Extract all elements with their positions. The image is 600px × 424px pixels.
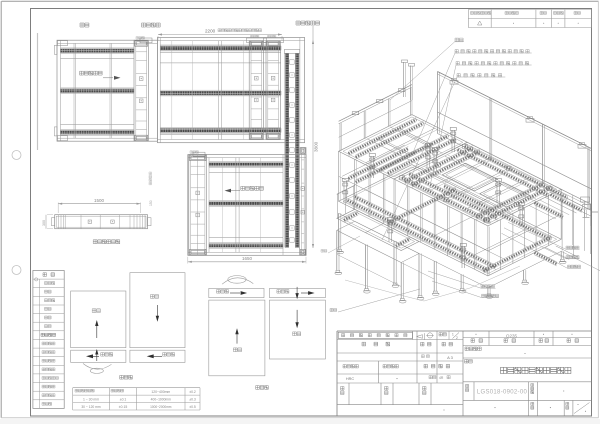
svg-text:2: 2 xyxy=(456,336,458,340)
svg-text:1: 1 xyxy=(452,332,454,336)
svg-text:HRC: HRC xyxy=(346,377,354,381)
svg-text:1000~2000mm: 1000~2000mm xyxy=(150,405,172,409)
svg-text:1 ~ 30 mm: 1 ~ 30 mm xyxy=(83,397,99,401)
svg-text:A 3: A 3 xyxy=(447,355,454,360)
svg-text:±0.15: ±0.15 xyxy=(119,405,128,409)
svg-text:±0.3: ±0.3 xyxy=(189,397,196,401)
svg-text:±0.5: ±0.5 xyxy=(189,405,196,409)
svg-text:4R: 4R xyxy=(439,376,444,380)
svg-text:±0.2: ±0.2 xyxy=(189,390,196,394)
svg-text:400~1000mm: 400~1000mm xyxy=(151,397,172,401)
svg-text:2200: 2200 xyxy=(205,29,216,34)
svg-text:3800: 3800 xyxy=(314,141,319,152)
svg-text:300: 300 xyxy=(42,220,46,226)
svg-text:120~400mm: 120~400mm xyxy=(151,390,170,394)
svg-text:150: 150 xyxy=(149,200,153,206)
svg-text:1500: 1500 xyxy=(94,198,105,203)
svg-text:1650: 1650 xyxy=(242,256,253,261)
svg-text:LGS018-0902-00: LGS018-0902-00 xyxy=(477,390,528,396)
svg-text:Q235: Q235 xyxy=(506,334,518,339)
svg-text:30 ~ 120 mm: 30 ~ 120 mm xyxy=(81,405,101,409)
svg-text:±0.1: ±0.1 xyxy=(120,397,127,401)
